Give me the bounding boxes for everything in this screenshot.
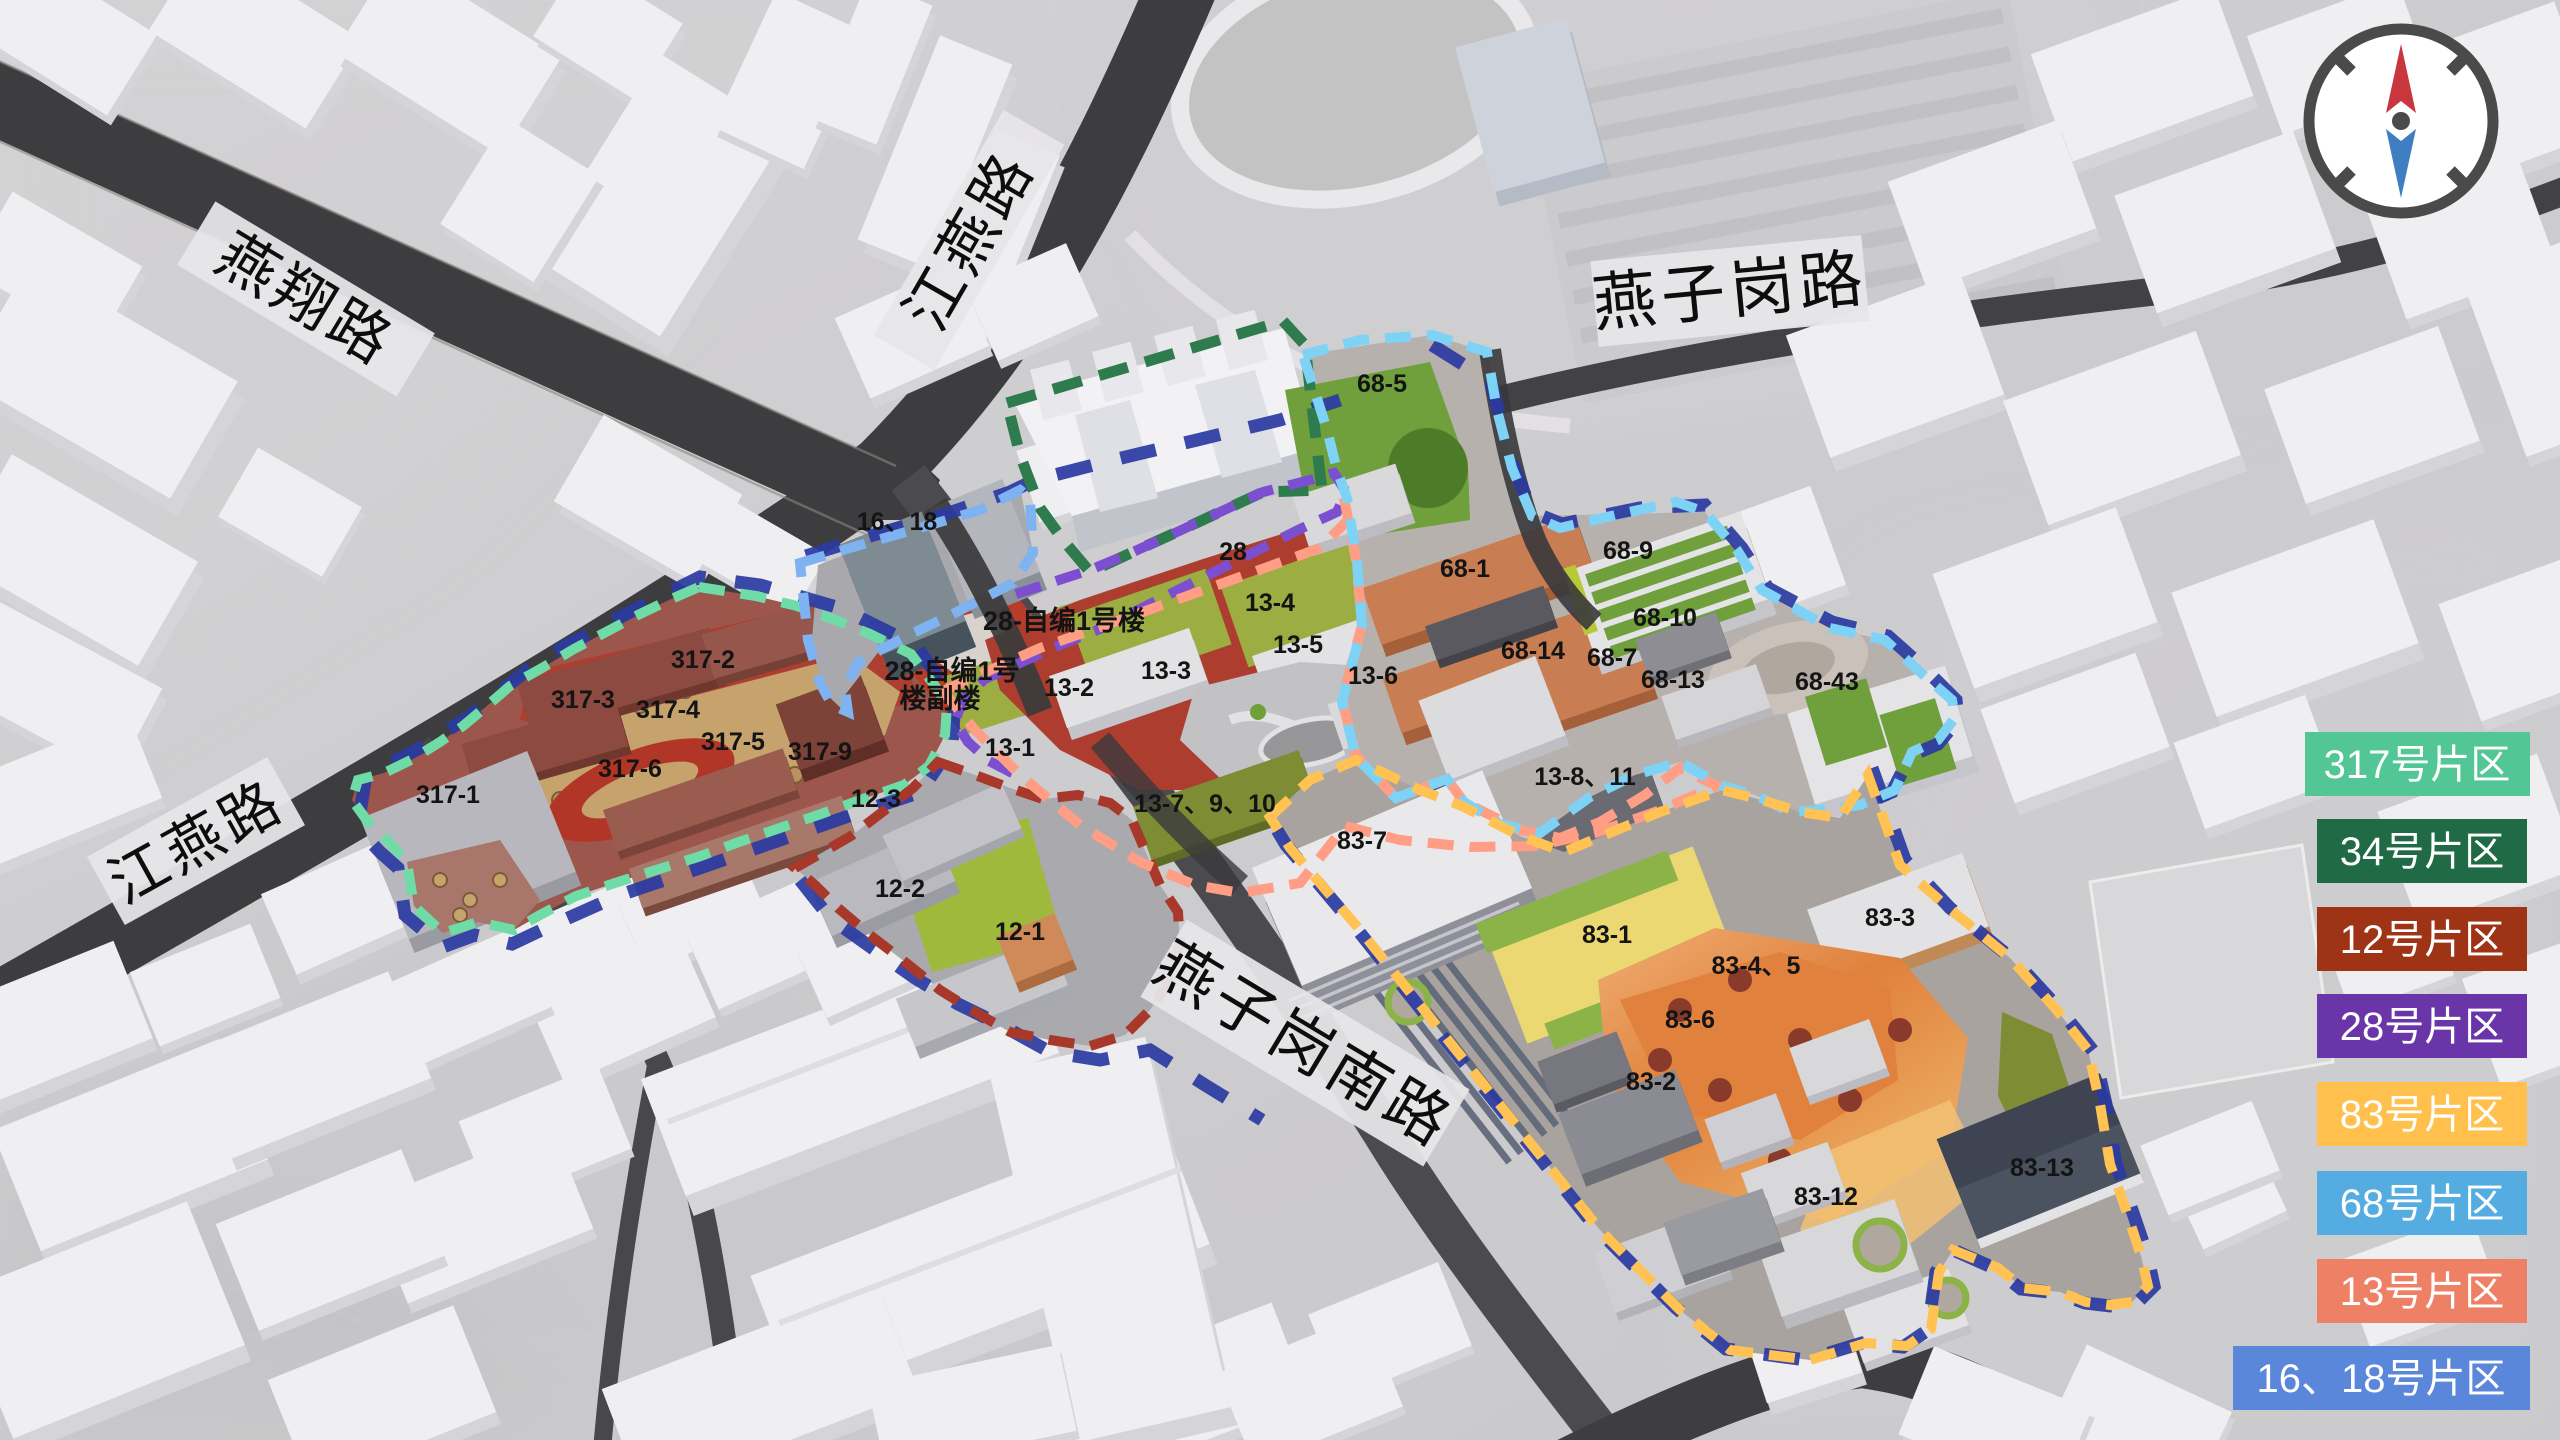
- svg-text:83-2: 83-2: [1626, 1068, 1676, 1096]
- svg-text:28号片区: 28号片区: [2340, 1005, 2505, 1049]
- svg-text:317-1: 317-1: [416, 781, 480, 809]
- svg-text:68-7: 68-7: [1587, 644, 1637, 672]
- svg-text:83-4、5: 83-4、5: [1712, 952, 1801, 980]
- svg-text:13-4: 13-4: [1245, 589, 1295, 617]
- svg-text:16、18: 16、18: [857, 508, 938, 536]
- svg-text:13号片区: 13号片区: [2340, 1270, 2505, 1314]
- svg-text:68-14: 68-14: [1501, 637, 1565, 665]
- svg-text:13-5: 13-5: [1273, 631, 1323, 659]
- svg-text:28: 28: [1219, 538, 1247, 566]
- svg-text:13-6: 13-6: [1348, 662, 1398, 690]
- svg-text:317-4: 317-4: [636, 696, 700, 724]
- svg-text:12号片区: 12号片区: [2340, 918, 2505, 962]
- svg-text:83-7: 83-7: [1337, 827, 1387, 855]
- svg-text:83-12: 83-12: [1794, 1183, 1858, 1211]
- svg-text:317-2: 317-2: [671, 646, 735, 674]
- svg-text:83-3: 83-3: [1865, 904, 1915, 932]
- svg-text:68-13: 68-13: [1641, 666, 1705, 694]
- svg-text:83-6: 83-6: [1665, 1006, 1715, 1034]
- svg-text:68-1: 68-1: [1440, 555, 1490, 583]
- svg-text:317-9: 317-9: [788, 738, 852, 766]
- svg-text:28-自编1号楼: 28-自编1号楼: [983, 605, 1145, 636]
- svg-text:12-1: 12-1: [995, 918, 1045, 946]
- svg-text:12-2: 12-2: [875, 875, 925, 903]
- svg-text:68-9: 68-9: [1603, 537, 1653, 565]
- svg-text:13-8、11: 13-8、11: [1534, 763, 1636, 791]
- svg-text:13-3: 13-3: [1141, 657, 1191, 685]
- svg-text:34号片区: 34号片区: [2340, 830, 2505, 874]
- svg-text:13-2: 13-2: [1044, 674, 1094, 702]
- svg-text:12-3: 12-3: [851, 785, 901, 813]
- svg-text:楼副楼: 楼副楼: [900, 684, 981, 714]
- svg-text:13-7、9、10: 13-7、9、10: [1134, 790, 1276, 818]
- svg-text:13-1: 13-1: [985, 734, 1035, 762]
- svg-text:28-自编1号: 28-自编1号: [884, 655, 1019, 686]
- svg-text:16、18号片区: 16、18号片区: [2257, 1357, 2506, 1401]
- svg-text:83-13: 83-13: [2010, 1154, 2074, 1182]
- svg-text:68-5: 68-5: [1357, 370, 1407, 398]
- svg-text:68号片区: 68号片区: [2340, 1182, 2505, 1226]
- svg-text:83-1: 83-1: [1582, 921, 1632, 949]
- svg-text:317-3: 317-3: [551, 686, 615, 714]
- svg-text:68-43: 68-43: [1795, 668, 1859, 696]
- svg-text:317号片区: 317号片区: [2324, 743, 2511, 787]
- svg-text:83号片区: 83号片区: [2340, 1093, 2505, 1137]
- svg-text:317-5: 317-5: [701, 728, 765, 756]
- svg-text:68-10: 68-10: [1633, 604, 1697, 632]
- svg-text:317-6: 317-6: [598, 755, 662, 783]
